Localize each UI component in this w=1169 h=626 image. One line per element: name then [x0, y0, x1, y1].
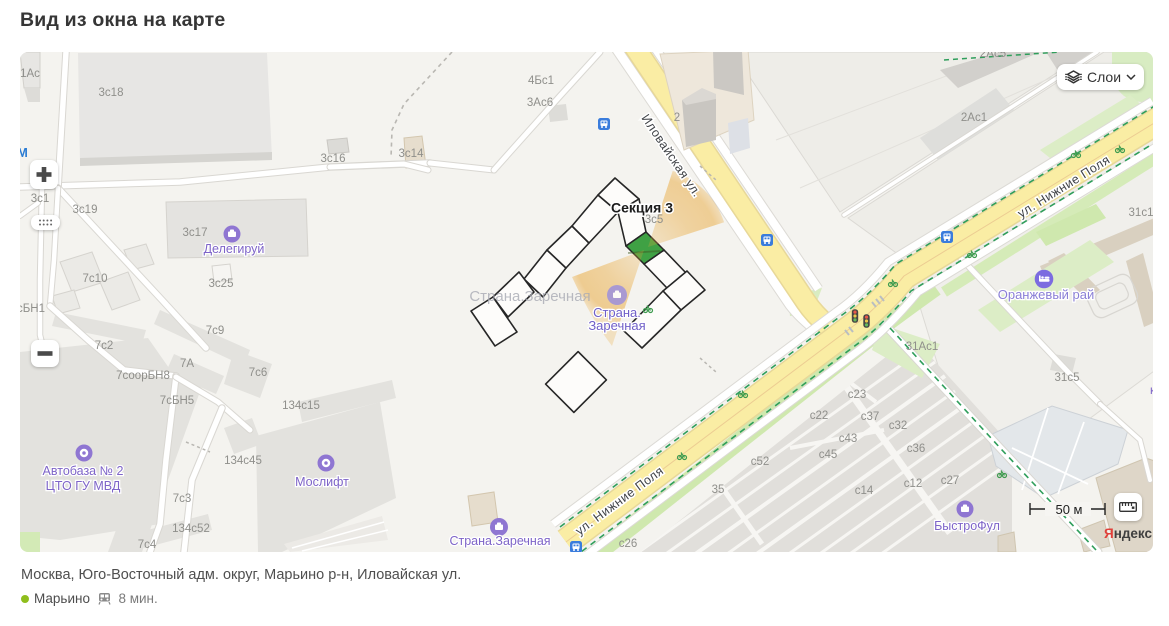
svg-text:3Ас6: 3Ас6	[527, 97, 553, 109]
svg-text:сБН1: сБН1	[20, 303, 45, 315]
svg-text:с37: с37	[861, 411, 880, 423]
svg-text:2Ас1: 2Ас1	[961, 112, 987, 124]
svg-text:1Ac: 1Ac	[20, 68, 40, 80]
svg-text:с27: с27	[941, 475, 960, 487]
svg-text:с14: с14	[855, 485, 874, 497]
svg-text:с23: с23	[848, 389, 867, 401]
svg-text:Оранжевый рай: Оранжевый рай	[998, 287, 1095, 302]
svg-text:3с5: 3с5	[645, 214, 664, 226]
svg-text:Автобаза № 2: Автобаза № 2	[43, 464, 124, 478]
svg-text:Мослифт: Мослифт	[295, 475, 349, 489]
svg-text:Страна.Заречная: Страна.Заречная	[449, 534, 550, 548]
svg-text:3с16: 3с16	[321, 153, 346, 165]
svg-text:7с10: 7с10	[83, 273, 108, 285]
svg-text:50 м: 50 м	[1055, 502, 1082, 516]
svg-text:7с6: 7с6	[249, 367, 268, 379]
svg-text:3с17: 3с17	[183, 227, 208, 239]
svg-text:7с3: 7с3	[173, 493, 192, 505]
svg-text:с32: с32	[889, 420, 908, 432]
svg-text:35: 35	[712, 484, 725, 496]
svg-text:с26: с26	[619, 538, 638, 550]
svg-text:Заречная: Заречная	[588, 318, 645, 333]
svg-text:с36: с36	[907, 443, 926, 455]
svg-text:3с1: 3с1	[31, 193, 50, 205]
svg-text:ЦТО ГУ МВД: ЦТО ГУ МВД	[46, 479, 121, 493]
svg-text:к: к	[1150, 383, 1153, 397]
svg-text:4Бс1: 4Бс1	[528, 75, 554, 87]
svg-text:с12: с12	[904, 478, 923, 490]
svg-text:БыстроФул: БыстроФул	[934, 519, 1000, 533]
svg-text:с22: с22	[810, 410, 829, 422]
svg-text:3с25: 3с25	[209, 278, 234, 290]
svg-text:Делегируй: Делегируй	[204, 242, 265, 256]
svg-text:31с1: 31с1	[1129, 207, 1153, 219]
svg-text:М: М	[20, 145, 28, 160]
svg-text:3c18: 3c18	[99, 87, 124, 99]
svg-text:7сБН5: 7сБН5	[160, 395, 194, 407]
svg-text:7с4: 7с4	[138, 539, 157, 551]
svg-text:с52: с52	[751, 456, 770, 468]
svg-text:с43: с43	[839, 433, 858, 445]
svg-text:с45: с45	[819, 449, 838, 461]
svg-text:3с14: 3с14	[399, 148, 425, 160]
svg-text:2: 2	[674, 112, 680, 124]
svg-text:134с15: 134с15	[282, 400, 320, 412]
svg-text:31Ас1: 31Ас1	[906, 341, 939, 353]
svg-text:7с9: 7с9	[206, 325, 225, 337]
svg-text:3с19: 3с19	[73, 204, 98, 216]
svg-text:134с52: 134с52	[172, 523, 210, 535]
svg-text:7соорБН8: 7соорБН8	[116, 370, 170, 382]
svg-text:7с2: 7с2	[95, 340, 114, 352]
svg-text:7А: 7А	[180, 358, 194, 370]
svg-text:Секция 3: Секция 3	[611, 200, 673, 216]
svg-text:31с5: 31с5	[1055, 372, 1080, 384]
svg-text:134с45: 134с45	[224, 455, 262, 467]
svg-text:2Ас5: 2Ас5	[980, 52, 1006, 60]
svg-text:Страна.Заречная: Страна.Заречная	[469, 288, 590, 305]
